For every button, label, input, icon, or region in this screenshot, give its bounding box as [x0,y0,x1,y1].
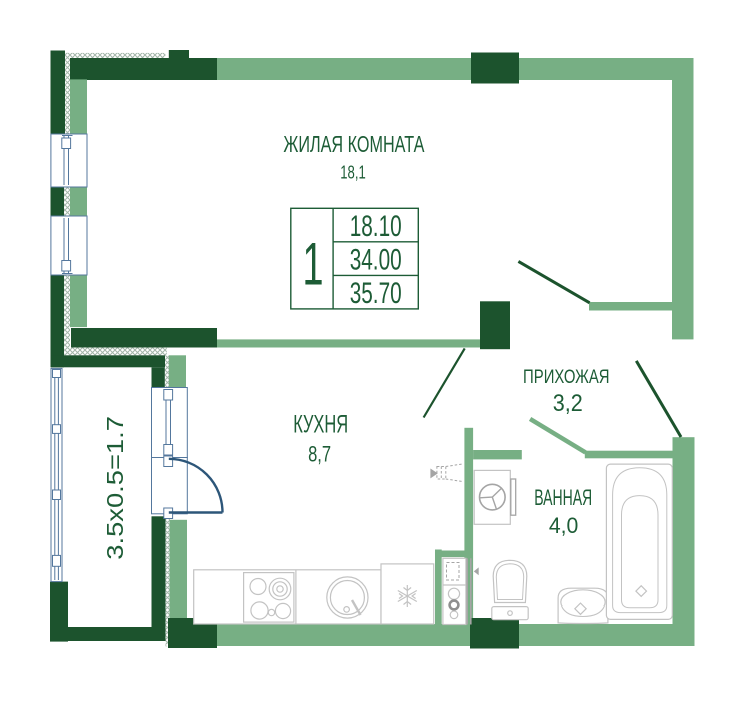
svg-text:КУХНЯ: КУХНЯ [293,411,348,439]
svg-text:3.5x0.5=1.7: 3.5x0.5=1.7 [102,416,128,560]
svg-text:ЖИЛАЯ КОМНАТА: ЖИЛАЯ КОМНАТА [283,131,424,157]
svg-text:4,0: 4,0 [549,513,579,538]
svg-text:3,2: 3,2 [553,390,583,417]
svg-text:8,7: 8,7 [308,441,331,466]
svg-text:ВАННАЯ: ВАННАЯ [534,485,592,510]
svg-text:18,1: 18,1 [340,162,366,183]
svg-text:1: 1 [303,231,324,298]
svg-text:34.00: 34.00 [350,243,402,276]
svg-text:18.10: 18.10 [350,210,402,243]
svg-text:35.70: 35.70 [350,277,402,310]
svg-text:ПРИХОЖАЯ: ПРИХОЖАЯ [523,366,610,388]
